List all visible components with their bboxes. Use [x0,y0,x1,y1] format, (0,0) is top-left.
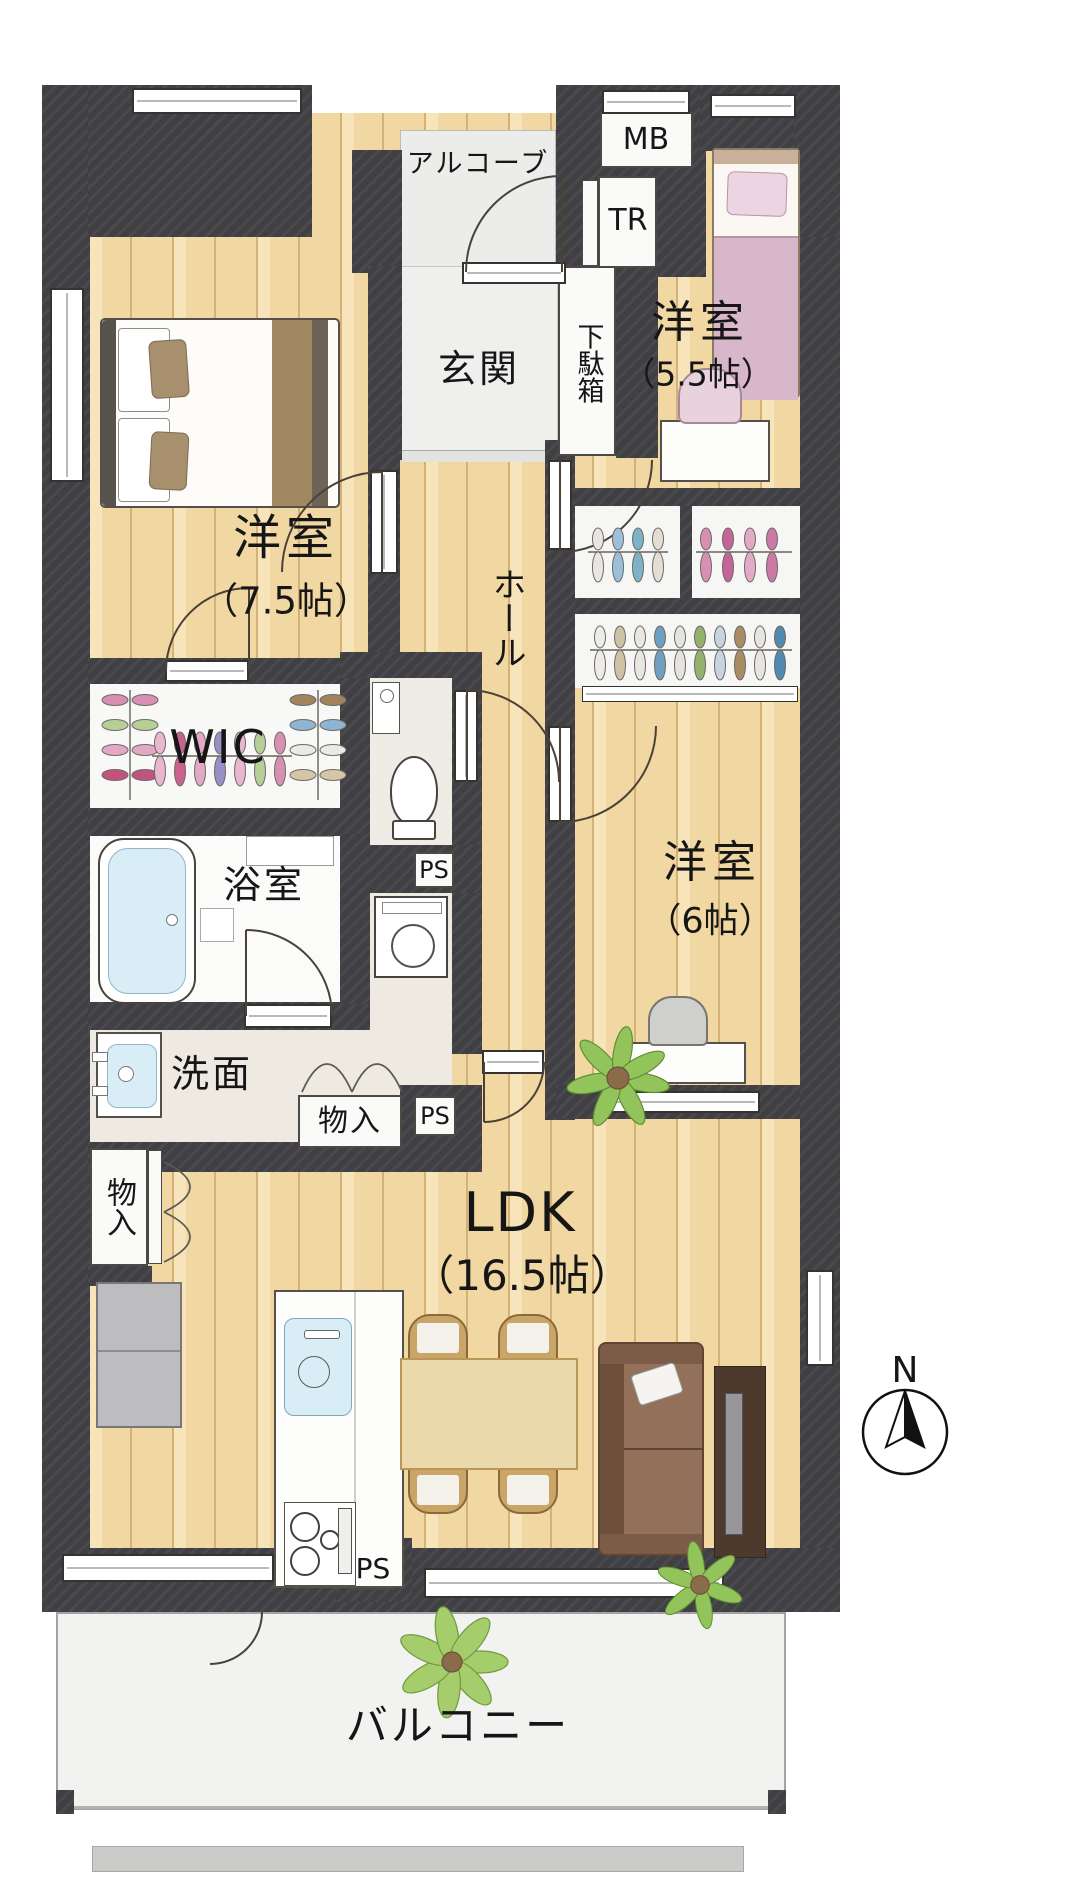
double-bed [100,318,340,508]
desk-bedroom6 [624,1042,746,1084]
wall-closet55-top [575,488,800,506]
room-label-washroom: 洗面 [171,1055,253,1093]
room-label-bedroom55: 洋室 [651,301,749,345]
kitchen-counter [274,1290,404,1588]
window-right-ldk [806,1270,834,1366]
wall-closet55-divider [680,506,692,598]
compass-icon [863,1390,947,1474]
closet-bedroom6-area [575,614,800,688]
wall-between-closets [575,598,800,614]
refrigerator [96,1282,182,1428]
room-label-storage2: 物入 [103,1177,133,1237]
kitchen-faucet [304,1330,340,1339]
wall-top-right-corner [794,85,840,237]
bedroom55-door-opening [548,460,572,550]
washing-machine-panel [382,902,442,914]
balcony-corner-left [56,1790,74,1814]
balcony-corner-right [768,1790,786,1814]
hall-ldk-door-opening [482,1050,544,1074]
room-label-bedroom6: 洋室 [663,841,761,885]
chair-bedroom6 [648,996,708,1046]
room-size-bedroom55: （5.5帖） [622,358,773,391]
room-label-ldk: LDK [463,1186,576,1240]
bed-cushion [148,339,190,400]
window-left-bedroom75 [50,288,84,482]
room-label-bedroom75: 洋室 [233,514,339,562]
tv-screen [725,1393,743,1535]
stove-burner [290,1512,320,1542]
room-label-storage1: 物入 [318,1107,382,1137]
toilet-bowl [390,756,438,826]
refrigerator-door-line [98,1350,180,1352]
wic-door-opening [165,660,249,682]
bed-cushion [149,431,190,491]
window-bedroom6-bottom [608,1091,760,1113]
storage2-door-leaf [148,1150,162,1264]
toilet-door-opening [454,690,478,782]
window-above-mb [602,90,690,114]
room-label-bathroom: 浴室 [223,866,305,904]
room-label-ps2: PS [420,1104,450,1128]
sofa-pillow [630,1362,684,1407]
dining-chair [498,1314,558,1362]
bed-pillow [726,171,787,217]
floor-plan: アルコーブ MB TR 玄関 下駄箱 洋室 （7.5帖） 洋室 （5.5帖） ホ… [0,0,1087,1878]
wall-wic-bottom [88,808,370,836]
dining-chair [408,1466,468,1514]
wall-entrance-left [368,266,402,460]
wall-right [800,85,840,1612]
bathtub [98,838,196,1004]
bedroom75-door-opening [370,470,398,574]
window-top-right [710,94,796,118]
stove-burner [290,1546,320,1576]
bath-controls [200,908,234,942]
sink-faucet [92,1086,108,1096]
bedroom6-door-opening [548,726,572,822]
sofa-back [600,1344,624,1554]
stove-burner-small [320,1530,340,1550]
room-size-bedroom6: （6帖） [646,905,773,940]
lower-floor-bar [92,1846,744,1872]
balcony-sliding-door [424,1568,724,1598]
room-label-entrance: 玄関 [438,350,520,388]
balcony-edge-line [56,1806,786,1809]
bed-headboard [714,150,798,164]
bathtub-drain [166,914,178,926]
sink-drain [298,1356,330,1388]
window-top-left [132,88,302,114]
sink-drain [118,1066,134,1082]
dining-chair [408,1314,468,1362]
bed-runner [272,320,312,506]
wall-alcove-left [352,150,402,273]
bed-headboard [102,320,116,506]
dining-table [400,1358,578,1470]
entrance-step [402,450,556,462]
sofa-armrest [600,1534,702,1554]
compass-north-label: N [892,1353,919,1389]
washing-machine-drum [391,924,435,968]
sink-faucet [92,1052,108,1062]
basin-drain [380,689,394,703]
wall-laundry-right [452,893,482,1054]
room-label-hall: ホール [489,567,523,669]
front-door-opening [462,262,566,284]
toilet-hand-basin [372,682,400,734]
room-label-wic: WIC [169,724,266,770]
room-label-alcove: アルコーブ [407,151,550,178]
toilet-seat [392,820,436,840]
stove-grill [338,1508,352,1574]
tv-board [714,1366,766,1558]
closet6-sliding-track [582,686,798,702]
dining-chair [498,1466,558,1514]
bath-counter [246,836,334,866]
room-label-ps1: PS [419,858,449,882]
room-label-ps3: PS [356,1555,391,1583]
room-label-trunk-room: TR [608,206,647,236]
bed-footboard [312,320,328,506]
trunk-room-door-leaf [582,180,598,266]
room-label-balcony: バルコニー [346,1705,570,1747]
sofa-cushion-line [624,1448,702,1450]
sofa-armrest [600,1344,702,1364]
bath-door-opening [244,1004,332,1028]
window-bottom-left [62,1554,274,1582]
room-size-ldk: （16.5帖） [412,1255,632,1297]
washing-machine [374,896,448,978]
sofa [598,1342,704,1556]
room-label-shoe-cabinet: 下駄箱 [575,323,602,404]
room-label-meter-box: MB [623,125,669,155]
wall-bath-right [340,834,370,1004]
desk-bedroom55 [660,420,770,482]
room-size-bedroom75: （7.5帖） [201,583,371,620]
washroom-sink [96,1032,162,1118]
